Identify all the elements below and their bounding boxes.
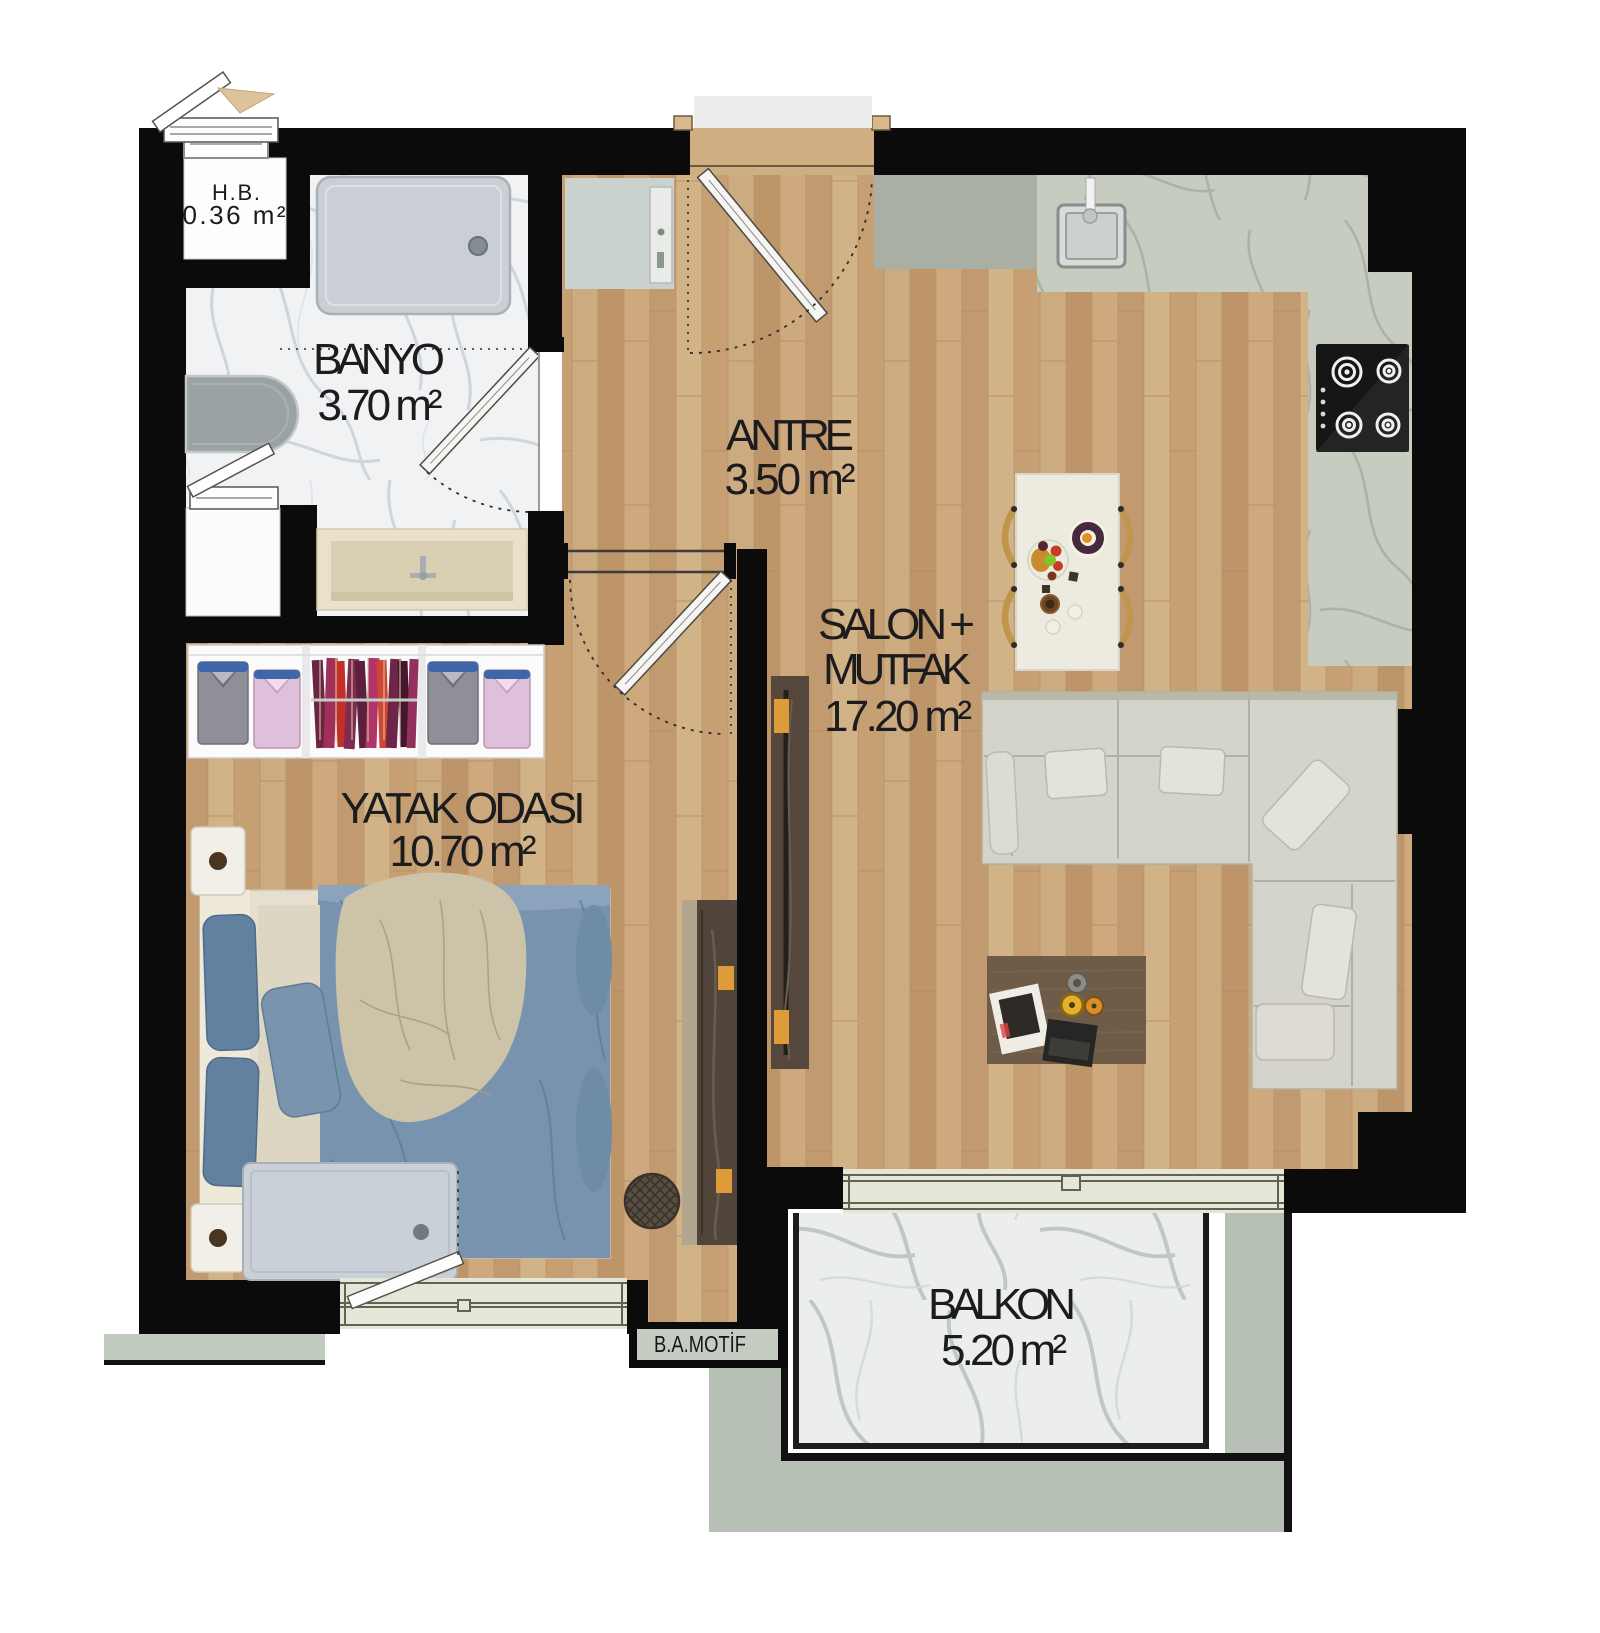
svg-text:B.A.MOTİF: B.A.MOTİF <box>654 1331 746 1357</box>
svg-text:3.50 m²: 3.50 m² <box>725 455 856 504</box>
svg-text:17.20 m²: 17.20 m² <box>824 692 972 741</box>
svg-text:YATAK ODASI: YATAK ODASI <box>341 784 586 833</box>
svg-text:BALKON: BALKON <box>928 1280 1076 1329</box>
svg-text:10.70 m²: 10.70 m² <box>390 827 537 876</box>
svg-text:SALON +: SALON + <box>818 600 975 649</box>
svg-text:3.70 m²: 3.70 m² <box>318 381 443 430</box>
svg-text:5.20 m²: 5.20 m² <box>941 1326 1067 1375</box>
svg-text:ANTRE: ANTRE <box>726 411 854 460</box>
svg-text:MUTFAK: MUTFAK <box>823 645 971 694</box>
svg-text:BANYO: BANYO <box>313 335 445 384</box>
